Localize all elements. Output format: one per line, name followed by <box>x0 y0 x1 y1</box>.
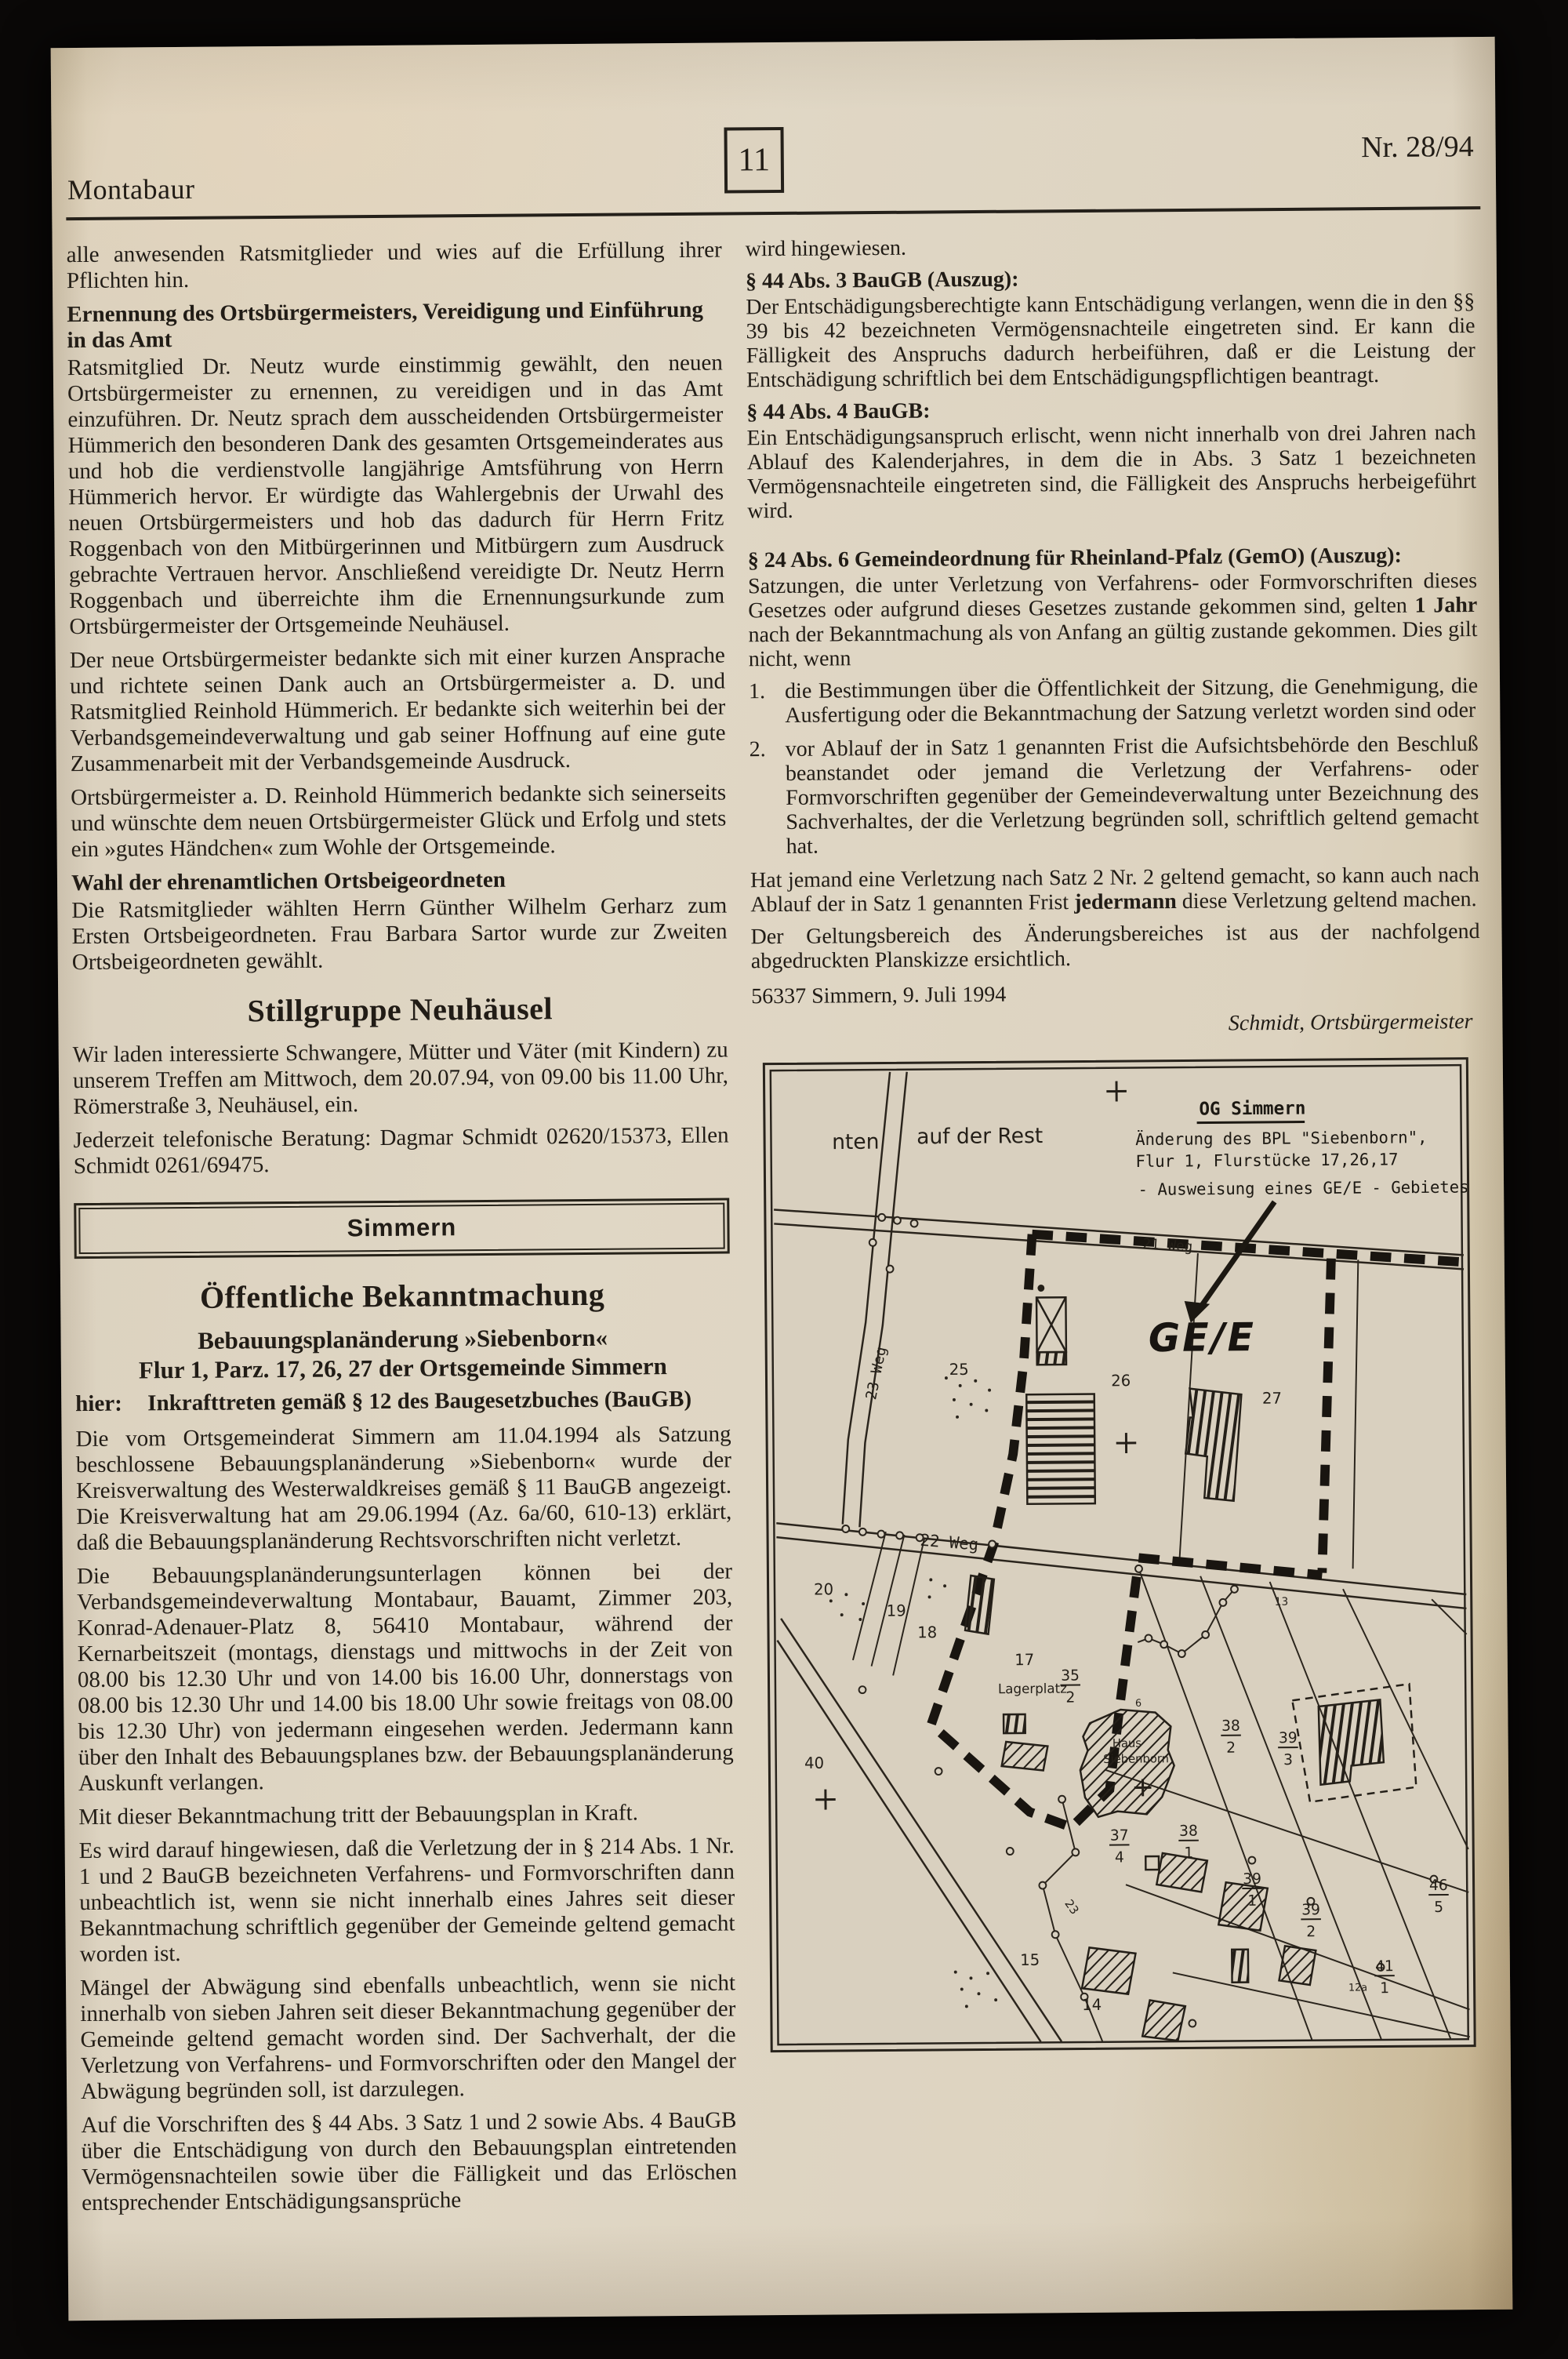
paragraph: Der Geltungsbereich des Änderungsbereich… <box>750 919 1479 973</box>
issue-number: Nr. 28/94 <box>1361 129 1474 165</box>
parcel-39-3: 393 <box>1278 1730 1298 1768</box>
section-heading: Ernennung des Ortsbürgermeisters, Vereid… <box>67 297 722 354</box>
svg-text:38: 38 <box>1179 1823 1198 1840</box>
parcel27-building <box>1185 1388 1243 1501</box>
geE-area-label: GE/E <box>1149 1314 1257 1361</box>
paragraph: Hat jemand eine Verletzung nach Satz 2 N… <box>750 863 1479 917</box>
law-heading: § 44 Abs. 4 BauGB: <box>746 394 1475 424</box>
left-column: alle anwesenden Ratsmitglieder und wies … <box>67 238 738 2224</box>
paragraph: Der neue Ortsbürgermeister bedankte sich… <box>70 643 726 778</box>
map-subtitle-line3: - Ausweisung eines GE/E - Gebietes - <box>1138 1177 1474 1199</box>
reference-text: Inkrafttreten gemäß § 12 des Baugesetzbu… <box>147 1387 731 1417</box>
list-item-text: vor Ablauf der in Satz 1 genannten Frist… <box>786 732 1479 859</box>
paragraph: Auf die Vorschriften des § 44 Abs. 3 Sat… <box>81 2107 737 2216</box>
paragraph-text: diese Verletzung geltend machen. <box>1177 887 1477 914</box>
sub-heading: Bebauungsplanänderung »Siebenborn« <box>74 1324 730 1355</box>
survey-crosses <box>810 1081 1152 1809</box>
paragraph: Die Ratsmitglieder wählten Herrn Günther… <box>71 893 728 976</box>
map-subtitle-line1: Änderung des BPL "Siebenborn", <box>1135 1127 1428 1149</box>
dot-scatter <box>828 1376 998 2009</box>
right-column: wird hingewiesen. § 44 Abs. 3 BauGB (Aus… <box>746 231 1490 2219</box>
svg-text:38: 38 <box>1221 1718 1240 1735</box>
weg23-label: 23 Weg <box>863 1345 890 1401</box>
signature: Schmidt, Ortsbürgermeister <box>751 1009 1472 1039</box>
parcel-39-2: 392 <box>1301 1902 1321 1940</box>
paragraph-text: nach der Bekanntmachung als von Anfang a… <box>748 617 1477 671</box>
page-number: 11 <box>738 141 770 179</box>
svg-text:1: 1 <box>1380 1980 1389 1997</box>
svg-text:1: 1 <box>1184 1845 1193 1862</box>
road23-label: 23 <box>1062 1897 1081 1917</box>
building-in-dashed-parcel <box>1319 1699 1384 1784</box>
map-dot <box>1037 1285 1044 1292</box>
municipality-box: Simmern <box>74 1198 730 1259</box>
two-column-layout: alle anwesenden Ratsmitglieder und wies … <box>67 231 1498 2224</box>
svg-text:37: 37 <box>1110 1827 1129 1844</box>
parcel-27: 27 <box>1262 1389 1282 1407</box>
small-building <box>1156 1853 1207 1892</box>
small-building <box>1004 1714 1025 1733</box>
paragraph: Mängel der Abwägung sind ebenfalls unbea… <box>80 1970 736 2105</box>
parcel-15: 15 <box>1020 1951 1040 1969</box>
reference-label: hier: <box>75 1390 147 1417</box>
small-building <box>1232 1950 1248 1983</box>
paragraph: Mit dieser Bekanntmachung tritt der Beba… <box>78 1800 734 1831</box>
roads <box>773 1067 1470 2044</box>
haus-label-1: Haus <box>1112 1737 1142 1750</box>
svg-text:2: 2 <box>1065 1689 1075 1706</box>
law-heading: § 24 Abs. 6 Gemeindeordnung für Rheinlan… <box>748 543 1477 572</box>
paragraph: Ein Entschädigungsanspruch erlischt, wen… <box>746 420 1476 523</box>
parcel-38-2: 382 <box>1221 1718 1241 1757</box>
header-rule <box>66 206 1480 220</box>
lagerplatz-label: Lagerplatz <box>998 1680 1067 1696</box>
hatched-hall-building <box>1026 1394 1095 1504</box>
paragraph: Es wird darauf hingewiesen, daß die Verl… <box>79 1834 735 1968</box>
svg-text:41: 41 <box>1375 1958 1394 1975</box>
haus-label-2: Siebenborn <box>1103 1752 1169 1766</box>
parcel-18: 18 <box>917 1623 937 1641</box>
list-item: 1. die Bestimmungen über die Öffentlichk… <box>749 674 1478 728</box>
parcel-12a: 12a <box>1348 1982 1367 1994</box>
small-building <box>1279 1946 1316 1985</box>
parcel-20: 20 <box>814 1580 833 1598</box>
parcel-6: 6 <box>1135 1698 1142 1710</box>
small-building <box>1218 1882 1268 1931</box>
paragraph: Die vom Ortsgemeinderat Simmern am 11.04… <box>75 1422 731 1557</box>
bold-term: jedermann <box>1074 889 1177 914</box>
page-number-box: 11 <box>724 127 784 194</box>
list-item-number: 1. <box>749 679 785 728</box>
planskizze-map: OG Simmern Änderung des BPL "Siebenborn"… <box>763 1057 1476 2052</box>
field-name: auf der Rest <box>916 1124 1043 1149</box>
svg-text:2: 2 <box>1226 1740 1236 1757</box>
list-item: 2. vor Ablauf der in Satz 1 genannten Fr… <box>750 732 1479 859</box>
paragraph: Satzungen, die unter Verletzung von Verf… <box>748 569 1478 671</box>
small-building <box>1142 2000 1185 2041</box>
svg-text:5: 5 <box>1434 1899 1443 1916</box>
paragraph: Die Bebauungsplanänderungsunterlagen kön… <box>77 1559 734 1797</box>
parcel-13: 13 <box>1275 1596 1289 1608</box>
map-title: OG Simmern <box>1199 1098 1305 1119</box>
paragraph: Wir laden interessierte Schwangere, Mütt… <box>73 1038 729 1121</box>
article-headline: Stillgruppe Neuhäusel <box>72 994 728 1026</box>
paragraph: Ortsbürgermeister a. D. Reinhold Hümmeri… <box>71 780 727 863</box>
parcel-41-1: 411 <box>1374 1958 1395 1997</box>
parcel-14: 14 <box>1082 1996 1102 2014</box>
sub-heading: Flur 1, Parz. 17, 26, 27 der Ortsgemeind… <box>75 1353 731 1384</box>
weg21-label: 21 Weg <box>1142 1236 1193 1256</box>
bold-term: 1 Jahr <box>1414 593 1477 618</box>
svg-text:35: 35 <box>1061 1667 1080 1684</box>
paragraph-text: Satzungen, die unter Verletzung von Verf… <box>748 569 1477 623</box>
survey-nodes <box>840 1209 1439 2030</box>
paragraph: wird hingewiesen. <box>746 231 1475 261</box>
list-item-text: die Bestimmungen über die Öffentlichkeit… <box>785 674 1478 728</box>
paragraph: Ratsmitglied Dr. Neutz wurde einstimmig … <box>67 351 725 641</box>
article-headline: Öffentliche Bekanntmachung <box>74 1281 730 1312</box>
paragraph: alle anwesenden Ratsmitglieder und wies … <box>67 238 722 295</box>
weg22-label: 22 Weg <box>920 1531 979 1554</box>
small-building <box>965 1576 995 1634</box>
reference-line: hier: Inkrafttreten gemäß § 12 des Bauge… <box>75 1387 731 1418</box>
map-frame <box>771 1065 1468 2045</box>
municipality-box-label: Simmern <box>78 1203 724 1254</box>
map-subtitle-line2: Flur 1, Flurstücke 17,26,17 <box>1135 1150 1398 1171</box>
paragraph: Der Entschädigungsberechtigte kann Entsc… <box>746 289 1475 392</box>
scanned-newsletter-page: Montabaur Nr. 28/94 11 alle anwesenden R… <box>51 37 1513 2321</box>
parcel-25: 25 <box>949 1361 969 1379</box>
paragraph: Jederzeit telefonische Beratung: Dagmar … <box>73 1123 728 1180</box>
field-name-fragment: nten <box>832 1130 880 1155</box>
svg-text:46: 46 <box>1429 1877 1448 1894</box>
small-building <box>1082 1947 1136 1994</box>
small-annex <box>1145 1856 1159 1870</box>
transformer-building <box>1036 1297 1066 1365</box>
svg-text:3: 3 <box>1283 1752 1293 1768</box>
svg-text:39: 39 <box>1243 1871 1261 1888</box>
svg-text:39: 39 <box>1301 1902 1320 1918</box>
section-heading: Wahl der ehrenamtlichen Ortsbeigeordnete… <box>71 866 727 897</box>
site-plan-sketch: OG Simmern Änderung des BPL "Siebenborn"… <box>765 1060 1474 2050</box>
svg-text:2: 2 <box>1306 1924 1316 1940</box>
parcel-37-4: 374 <box>1109 1827 1130 1866</box>
parcel-26: 26 <box>1111 1372 1131 1390</box>
parcel-19: 19 <box>887 1601 906 1619</box>
parcel-17: 17 <box>1014 1651 1034 1669</box>
small-building <box>1001 1742 1047 1771</box>
svg-text:39: 39 <box>1279 1730 1298 1747</box>
parcel-46-5: 465 <box>1428 1877 1449 1916</box>
svg-text:1: 1 <box>1247 1893 1257 1910</box>
dateline: 56337 Simmern, 9. Juli 1994 <box>751 979 1480 1009</box>
page-title: Montabaur <box>67 173 195 206</box>
map-annotation: OG Simmern Änderung des BPL "Siebenborn"… <box>1135 1097 1474 1199</box>
svg-text:4: 4 <box>1115 1849 1124 1866</box>
parcel-40: 40 <box>804 1754 824 1772</box>
law-heading: § 44 Abs. 3 BauGB (Auszug): <box>746 264 1475 293</box>
list-item-number: 2. <box>750 737 786 859</box>
